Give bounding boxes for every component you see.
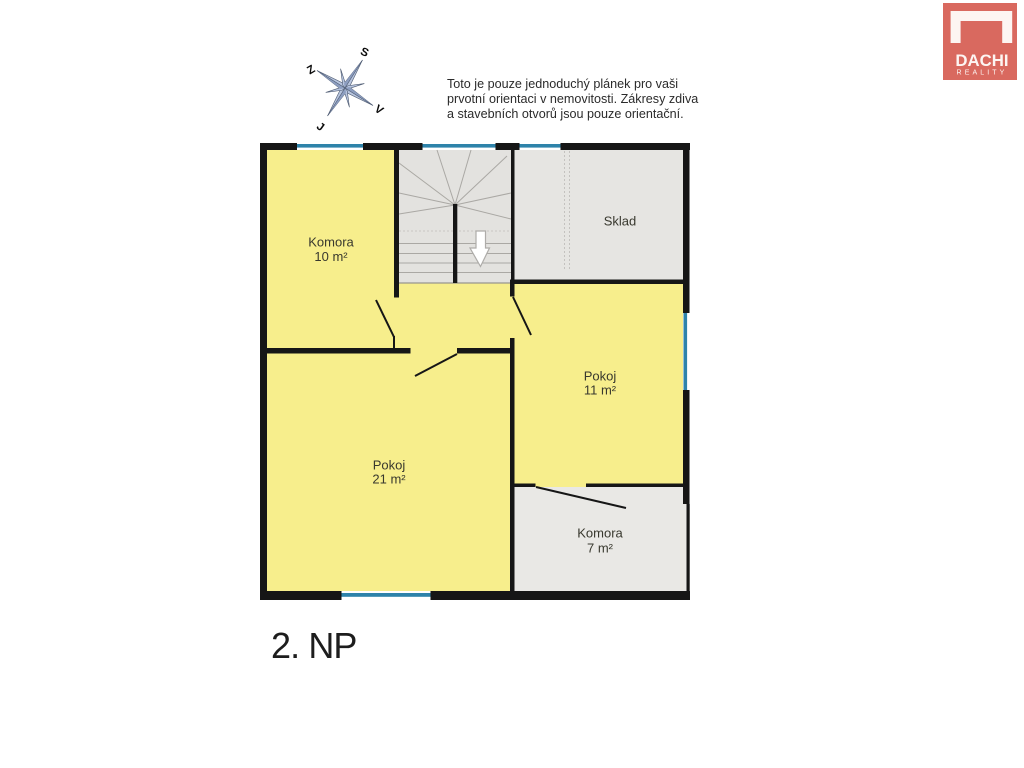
svg-text:Pokoj: Pokoj: [584, 369, 617, 384]
svg-text:Pokoj: Pokoj: [373, 458, 406, 473]
svg-text:21 m²: 21 m²: [372, 472, 406, 487]
svg-text:Sklad: Sklad: [604, 214, 637, 229]
svg-text:7 m²: 7 m²: [587, 541, 614, 556]
svg-text:Komora: Komora: [308, 235, 354, 250]
svg-text:Komora: Komora: [577, 526, 623, 541]
svg-text:11 m²: 11 m²: [584, 383, 617, 398]
svg-text:10 m²: 10 m²: [314, 249, 348, 264]
